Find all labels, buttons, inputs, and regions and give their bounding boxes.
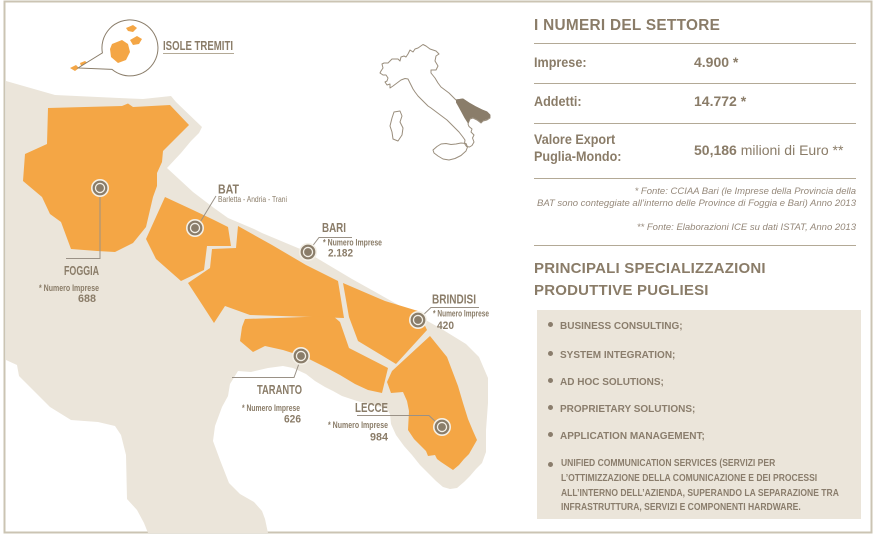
svg-text:BARI: BARI: [322, 220, 346, 235]
svg-text:2.182: 2.182: [328, 248, 353, 260]
svg-text:BRINDISI: BRINDISI: [432, 292, 476, 307]
svg-text:* Numero Imprese: * Numero Imprese: [323, 238, 382, 248]
svg-text:LECCE: LECCE: [355, 400, 388, 415]
svg-text:TARANTO: TARANTO: [257, 382, 302, 397]
svg-text:FOGGIA: FOGGIA: [64, 263, 99, 278]
svg-text:Barletta - Andria - Trani: Barletta - Andria - Trani: [218, 195, 287, 204]
svg-text:420: 420: [437, 320, 454, 332]
svg-text:* Numero Imprese: * Numero Imprese: [328, 420, 388, 430]
svg-text:* Numero Imprese: * Numero Imprese: [242, 403, 300, 413]
svg-text:* Numero Imprese: * Numero Imprese: [433, 309, 489, 319]
svg-text:ISOLE TREMITI: ISOLE TREMITI: [163, 38, 233, 53]
svg-text:626: 626: [284, 414, 301, 426]
svg-text:984: 984: [370, 432, 389, 444]
svg-text:* Numero Imprese: * Numero Imprese: [39, 283, 99, 293]
svg-text:688: 688: [78, 293, 96, 305]
